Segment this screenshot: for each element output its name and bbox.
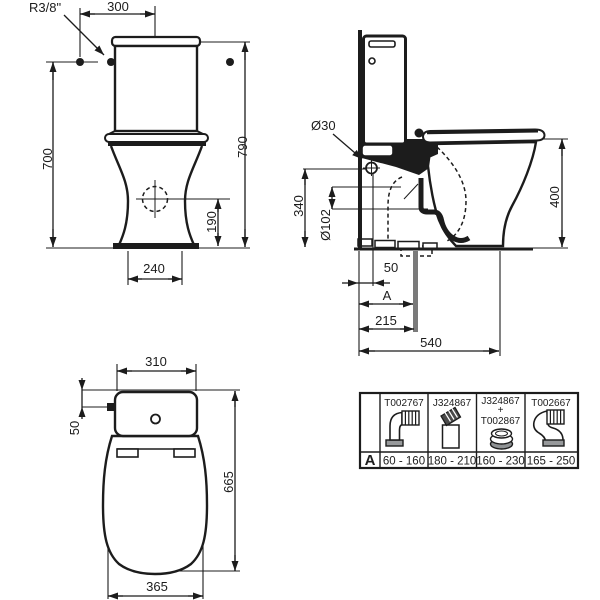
base-front [113,243,199,249]
dim-540-label: 540 [420,335,442,350]
seat-band-front [105,134,208,142]
part-number-1: T002767 [384,398,424,409]
dim-340-label: 340 [291,195,306,217]
cistern-side [364,36,406,144]
table-row-label: A [365,452,376,469]
technical-drawing-page: R3/8" 300 700 790 190 240 [0,0,600,600]
toilet-dimension-drawing: R3/8" 300 700 790 190 240 [0,0,600,600]
range-2: 180 - 210 [428,456,477,468]
hinge-left [117,449,138,457]
part-number-3b: T002867 [481,416,521,427]
hinge-right [174,449,195,457]
dim-310-label: 310 [145,354,167,369]
dim-700-label: 700 [40,148,55,170]
bowl-front-right [185,146,202,245]
straight-connector-icon [441,408,461,449]
range-4: 165 - 250 [527,456,576,468]
dim-240-label: 240 [143,261,165,276]
connector-table: A T002767 J324867 J324867 + T002867 T002… [360,393,578,469]
cistern-lid-front [112,37,200,46]
supply-point-left [76,58,84,66]
dim-300-label: 300 [107,0,129,14]
dim-50-side-label: 50 [384,260,398,275]
fixing-hole-dia-label: Ø30 [311,118,336,133]
top-view: 310 50 665 365 [67,354,240,599]
inlet-nub [107,403,116,411]
dim-190-label: 190 [204,211,219,233]
supply-point-right [226,58,234,66]
supply-thread-label: R3/8" [29,0,61,15]
range-3: 160 - 230 [476,456,525,468]
dim-A-label: A [383,288,392,303]
front-view: R3/8" 300 700 790 190 240 [29,0,250,285]
bowl-front-left [111,146,128,245]
dim-400-label: 400 [547,186,562,208]
flush-button [151,415,160,424]
cistern-front [115,46,197,131]
soil-pipe [413,251,418,332]
offset-ring-connector-icon [491,429,513,449]
supply-point-cistern [107,58,115,66]
dim-790-label: 790 [235,136,250,158]
part-number-4: T002667 [531,398,571,409]
range-1: 60 - 160 [383,456,425,468]
part-number-2: J324867 [433,398,472,409]
dim-365-label: 365 [146,579,168,594]
dim-665-label: 665 [221,471,236,493]
dim-50-top-label: 50 [67,421,82,435]
side-view: Ø30 340 Ø102 400 50 A 215 540 [291,30,568,356]
dim-215-label: 215 [375,313,397,328]
outlet-dia-label: Ø102 [318,209,333,241]
part-number-3-plus: + [498,405,504,416]
